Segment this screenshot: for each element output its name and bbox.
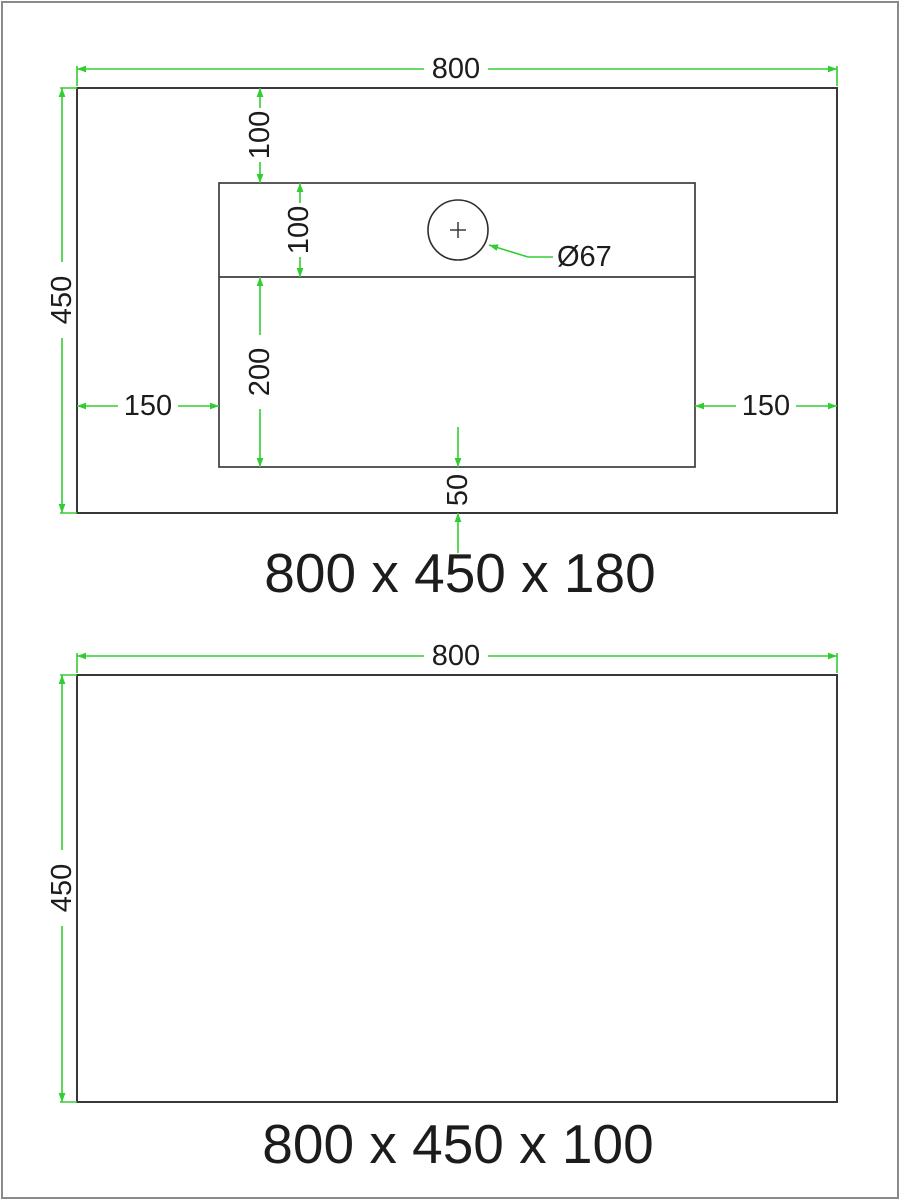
dim-bottom-height-450: 450 (46, 675, 78, 1102)
dim-label-left-inset: 150 (124, 390, 172, 422)
dim-hole-top-offset-100: 100 (244, 88, 276, 183)
dim-right-inset-150: 150 (695, 390, 837, 422)
dim-hole-band-100: 100 (283, 183, 315, 277)
dim-basin-lower-200: 200 (244, 277, 276, 467)
technical-drawing-page: 800 450 100 100 (0, 0, 900, 1200)
top-drawing-caption: 800 x 450 x 180 (264, 542, 655, 604)
dim-bottom-width-800: 800 (77, 640, 837, 673)
top-view-outer-panel (77, 88, 837, 513)
dim-label-height: 450 (46, 864, 78, 912)
faucet-hole (428, 200, 488, 260)
dim-label-height: 450 (46, 276, 78, 324)
dim-label-width: 800 (432, 640, 480, 672)
dim-label-top-offset: 100 (244, 111, 276, 159)
dim-label-right-inset: 150 (742, 390, 790, 422)
dim-label-basin-lower: 200 (244, 348, 276, 396)
bottom-drawing-caption: 800 x 450 x 100 (262, 1113, 653, 1175)
top-view-drawing: 800 450 100 100 (46, 53, 837, 604)
dim-top-width-800: 800 (77, 53, 837, 86)
dim-bottom-gap-50: 50 (442, 427, 474, 553)
drawing-svg: 800 450 100 100 (0, 0, 900, 1200)
dim-label-hole-band: 100 (283, 206, 315, 254)
bottom-view-drawing: 800 450 800 x 450 x 100 (46, 640, 837, 1175)
dim-label-width: 800 (432, 53, 480, 85)
bottom-view-panel (77, 675, 837, 1102)
leader-hole-diameter: Ø67 (489, 241, 612, 273)
dim-left-inset-150: 150 (77, 390, 219, 422)
dim-label-hole-diameter: Ø67 (557, 241, 612, 273)
dim-label-bottom-gap: 50 (442, 474, 474, 506)
dim-top-height-450: 450 (46, 88, 78, 513)
